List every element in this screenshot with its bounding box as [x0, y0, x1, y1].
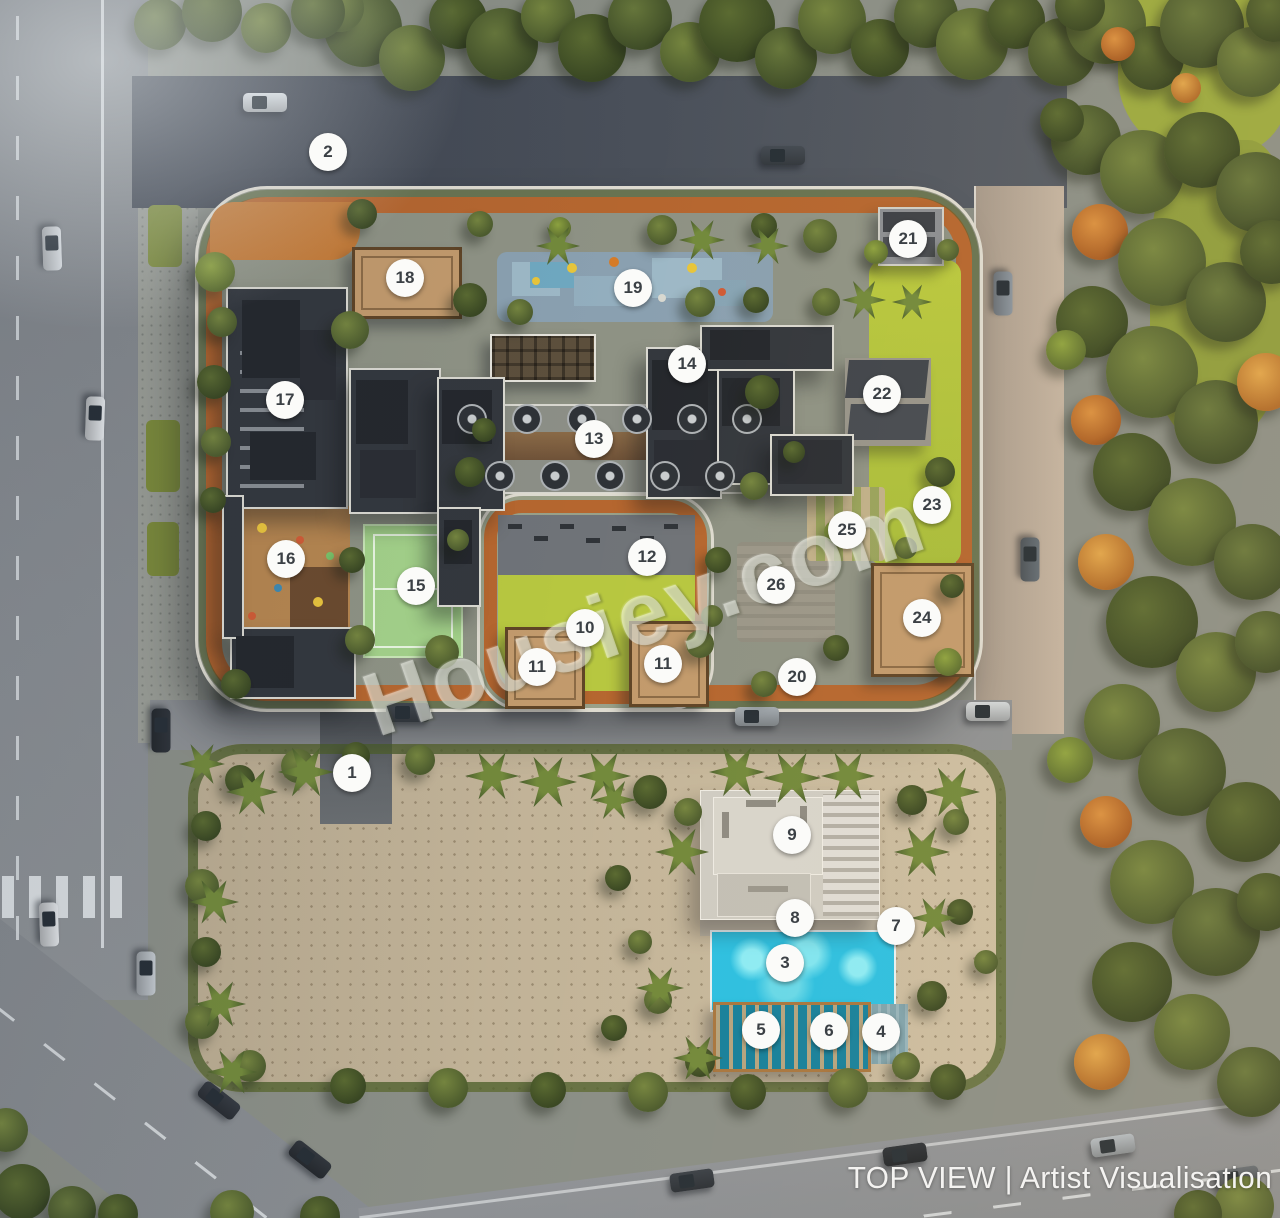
site-marker-11: 11: [518, 648, 556, 686]
site-marker-21: 21: [889, 220, 927, 258]
site-marker-24: 24: [903, 599, 941, 637]
site-marker-20: 20: [778, 658, 816, 696]
site-marker-3: 3: [766, 944, 804, 982]
site-marker-22: 22: [863, 375, 901, 413]
site-marker-15: 15: [397, 567, 435, 605]
site-marker-25: 25: [828, 511, 866, 549]
amenity-markers-layer: 1234567891011111213141516171819202122232…: [0, 0, 1280, 1218]
site-marker-5: 5: [742, 1011, 780, 1049]
site-marker-16: 16: [267, 540, 305, 578]
caption: TOP VIEW | Artist Visualisation: [847, 1160, 1272, 1196]
site-marker-7: 7: [877, 907, 915, 945]
site-marker-10: 10: [566, 609, 604, 647]
site-marker-12: 12: [628, 538, 666, 576]
site-marker-14: 14: [668, 345, 706, 383]
site-marker-4: 4: [862, 1013, 900, 1051]
site-marker-2: 2: [309, 133, 347, 171]
site-marker-6: 6: [810, 1012, 848, 1050]
site-marker-26: 26: [757, 566, 795, 604]
site-marker-23: 23: [913, 486, 951, 524]
site-marker-18: 18: [386, 259, 424, 297]
site-marker-8: 8: [776, 899, 814, 937]
site-marker-13: 13: [575, 420, 613, 458]
site-plan-render: Housiey.com 1234567891011111213141516171…: [0, 0, 1280, 1218]
site-marker-1: 1: [333, 754, 371, 792]
site-marker-17: 17: [266, 381, 304, 419]
site-marker-11: 11: [644, 645, 682, 683]
site-marker-9: 9: [773, 816, 811, 854]
site-marker-19: 19: [614, 269, 652, 307]
